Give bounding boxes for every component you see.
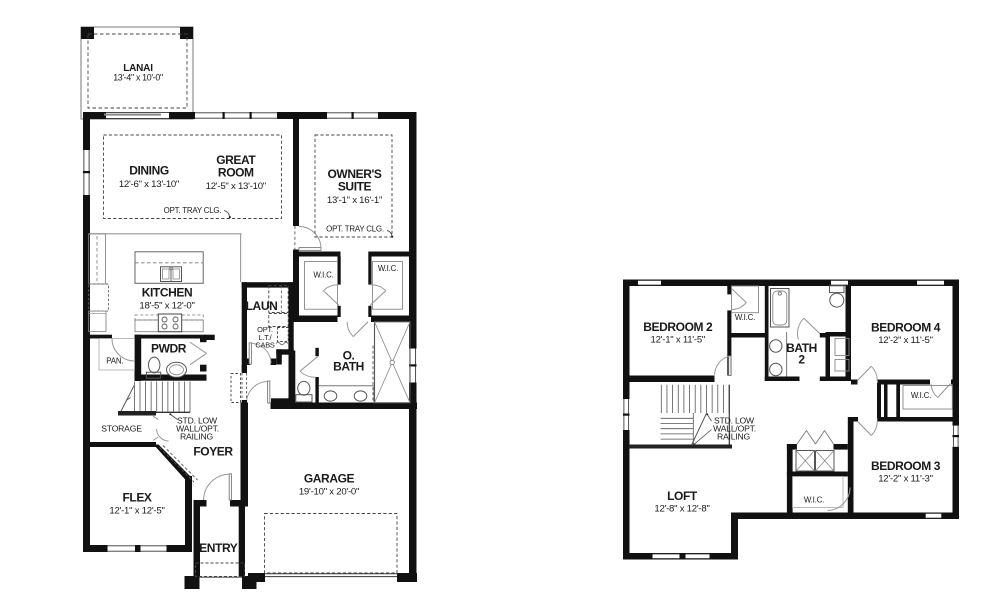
- svg-text:ENTRY: ENTRY: [199, 541, 238, 555]
- svg-text:BATH: BATH: [333, 360, 364, 374]
- svg-text:BEDROOM 3: BEDROOM 3: [871, 459, 941, 473]
- svg-text:12'-2" x 11'-3": 12'-2" x 11'-3": [878, 474, 933, 485]
- svg-text:FOYER: FOYER: [193, 445, 233, 459]
- svg-text:W.I.C.: W.I.C.: [735, 313, 755, 322]
- svg-text:OPT. TRAY CLG.: OPT. TRAY CLG.: [326, 225, 384, 234]
- svg-text:13'-1" x 16'-1": 13'-1" x 16'-1": [327, 195, 382, 206]
- svg-text:18'-5" x 12'-0": 18'-5" x 12'-0": [139, 301, 194, 312]
- svg-text:KITCHEN: KITCHEN: [142, 286, 193, 300]
- svg-text:RAILING: RAILING: [180, 431, 213, 441]
- svg-text:13'-4" x 10'-0": 13'-4" x 10'-0": [113, 73, 163, 83]
- svg-text:OPT. TRAY CLG.: OPT. TRAY CLG.: [164, 206, 222, 215]
- svg-text:W.I.C.: W.I.C.: [313, 271, 333, 280]
- svg-text:19'-10" x 20'-0": 19'-10" x 20'-0": [299, 487, 359, 498]
- svg-text:RAILING: RAILING: [717, 431, 750, 441]
- svg-text:12'-8" x 12'-8": 12'-8" x 12'-8": [654, 504, 709, 515]
- svg-text:W.I.C.: W.I.C.: [804, 496, 824, 505]
- svg-text:12'-1" x 12'-5": 12'-1" x 12'-5": [109, 506, 164, 517]
- svg-text:STORAGE: STORAGE: [101, 424, 142, 434]
- svg-text:12'-5" x 13'-10": 12'-5" x 13'-10": [206, 181, 266, 192]
- svg-text:SUITE: SUITE: [338, 180, 372, 194]
- svg-text:W.I.C.: W.I.C.: [378, 264, 398, 273]
- svg-text:CABS: CABS: [255, 341, 275, 350]
- svg-text:LOFT: LOFT: [667, 489, 698, 503]
- svg-text:PWDR: PWDR: [151, 342, 187, 356]
- svg-text:PAN.: PAN.: [106, 356, 123, 365]
- svg-text:FLEX: FLEX: [122, 491, 151, 505]
- svg-text:BEDROOM 2: BEDROOM 2: [643, 320, 713, 334]
- svg-text:W.I.C.: W.I.C.: [911, 391, 931, 400]
- svg-text:12'-2" x 11'-5": 12'-2" x 11'-5": [878, 335, 933, 346]
- svg-text:BEDROOM 4: BEDROOM 4: [871, 320, 941, 334]
- svg-text:DINING: DINING: [129, 164, 169, 178]
- svg-text:GARAGE: GARAGE: [304, 472, 355, 486]
- svg-text:12'-1" x 11'-5": 12'-1" x 11'-5": [651, 334, 706, 345]
- svg-text:12'-6" x 13'-10": 12'-6" x 13'-10": [119, 179, 179, 190]
- svg-text:ROOM: ROOM: [218, 166, 254, 180]
- svg-text:2: 2: [798, 353, 805, 367]
- svg-text:LAUN: LAUN: [246, 299, 278, 313]
